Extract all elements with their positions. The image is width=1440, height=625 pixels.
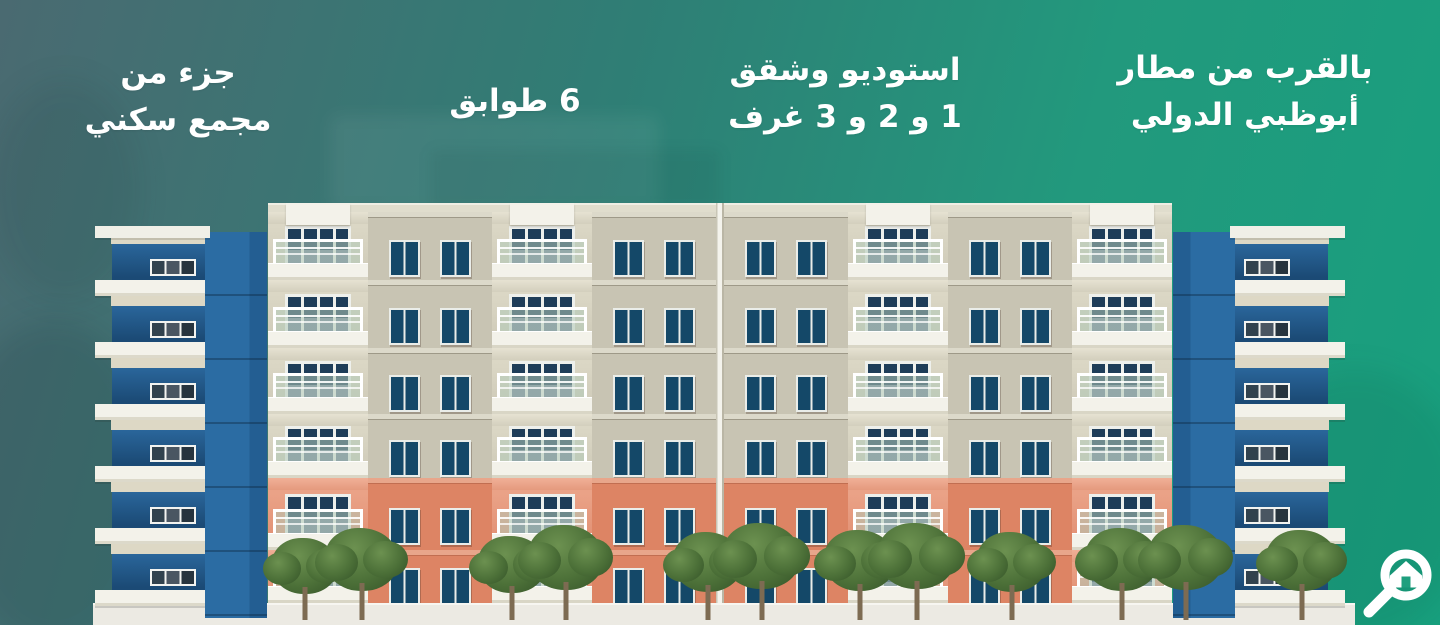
label-line: مجمع سكني <box>85 97 272 144</box>
balcony-slab <box>1072 332 1172 348</box>
balcony-slab <box>492 264 592 280</box>
balcony-railing <box>497 373 587 398</box>
wing-balcony <box>1230 358 1345 420</box>
balcony-railing <box>853 307 943 332</box>
tree <box>871 523 963 620</box>
apartment-window <box>1020 308 1051 345</box>
apartment-window <box>664 375 695 412</box>
wing-balcony-wall <box>112 554 210 591</box>
infographic-canvas: جزء من مجمع سكني 6 طوابق استوديو وشقق 1 … <box>0 0 1440 625</box>
wing-balcony-slab <box>95 466 210 482</box>
parapet-block <box>510 203 574 225</box>
apartment-window <box>1020 440 1051 477</box>
balcony-slab <box>1072 264 1172 280</box>
balcony-ceiling <box>268 280 368 292</box>
apartment-window <box>613 440 644 477</box>
wall-module <box>724 212 848 280</box>
wing-balcony <box>95 482 210 544</box>
apartment-window <box>796 240 827 277</box>
apartment-window <box>664 308 695 345</box>
wall-module <box>948 414 1072 478</box>
balcony-ceiling <box>1072 280 1172 292</box>
balcony-railing <box>273 239 363 264</box>
balcony-railing <box>853 437 943 462</box>
tree-trunk <box>1010 585 1015 620</box>
apartment-window <box>745 308 776 345</box>
wing-balcony <box>1230 234 1345 296</box>
wall-module <box>368 414 492 478</box>
tree-trunk <box>564 582 569 620</box>
balcony-ceiling <box>492 414 592 426</box>
balcony-slab <box>268 398 368 414</box>
wing-window <box>150 259 196 276</box>
label-line: جزء من <box>85 50 272 97</box>
apartment-window <box>796 308 827 345</box>
apartment-window <box>440 308 471 345</box>
wing-balcony-ceiling <box>1230 420 1329 430</box>
wing-balcony-slab <box>1230 466 1345 482</box>
wing-balcony-wall <box>112 306 210 343</box>
tree <box>318 528 406 620</box>
apartment-window <box>613 375 644 412</box>
wing-balcony-ceiling <box>1230 358 1329 368</box>
balcony-ceiling <box>492 478 592 490</box>
balcony-ceiling <box>492 348 592 360</box>
wing-window <box>1244 321 1290 338</box>
apartment-window <box>440 240 471 277</box>
balcony-slab <box>268 264 368 280</box>
parapet-block <box>286 203 350 225</box>
apartment-window <box>440 508 471 545</box>
wing-balcony-slab <box>1230 404 1345 420</box>
wall-module <box>724 414 848 478</box>
tree-canopy <box>723 523 800 589</box>
wall-module <box>368 348 492 414</box>
wing-balcony-ceiling <box>111 482 210 492</box>
wing-balcony-slab <box>1230 342 1345 358</box>
wing-balcony <box>1230 296 1345 358</box>
apartment-window <box>1020 240 1051 277</box>
wing-balcony <box>95 234 210 296</box>
wing-balcony <box>1230 420 1345 482</box>
balcony-module <box>848 348 948 414</box>
wing-balcony-wall <box>1230 368 1328 405</box>
balcony-ceiling <box>848 348 948 360</box>
apartment-window <box>389 440 420 477</box>
wall-module <box>724 348 848 414</box>
apartment-window <box>745 240 776 277</box>
balcony-railing <box>1077 307 1167 332</box>
magnifier-house-icon <box>1369 554 1427 612</box>
tree-canopy <box>1148 525 1224 590</box>
balcony-railing <box>853 239 943 264</box>
wall-module <box>724 280 848 348</box>
balcony-ceiling <box>268 478 368 490</box>
apartment-window <box>969 240 1000 277</box>
apartment-window <box>796 440 827 477</box>
apartment-window <box>664 240 695 277</box>
apartment-window <box>796 375 827 412</box>
apartment-window <box>440 375 471 412</box>
balcony-railing <box>497 307 587 332</box>
balcony-slab <box>1072 398 1172 414</box>
tree <box>716 523 808 620</box>
wing-balcony-slab <box>95 528 210 544</box>
balcony-slab <box>268 332 368 348</box>
tree-trunk <box>915 581 920 620</box>
label-unit-types: استوديو وشقق 1 و 2 و 3 غرف <box>728 47 962 140</box>
balcony-module <box>492 280 592 348</box>
wall-module <box>368 212 492 280</box>
balcony-railing <box>497 437 587 462</box>
wing-balcony-ceiling <box>1230 296 1329 306</box>
label-line: 1 و 2 و 3 غرف <box>728 94 962 141</box>
tree-trunk <box>360 583 365 620</box>
tree <box>1141 525 1231 620</box>
apartment-window <box>969 440 1000 477</box>
wing-balcony-wall <box>112 430 210 467</box>
wing-window <box>150 383 196 400</box>
tree-canopy <box>528 525 604 590</box>
tree-canopy <box>878 523 955 589</box>
wall-module <box>948 348 1072 414</box>
balcony-railing <box>1077 373 1167 398</box>
wing-balcony-ceiling <box>1230 482 1329 492</box>
balcony-slab <box>492 332 592 348</box>
wing-balcony-slab <box>95 342 210 358</box>
tree-canopy <box>1266 530 1338 591</box>
balcony-ceiling <box>268 348 368 360</box>
wing-balcony-wall <box>112 244 210 281</box>
label-airport-proximity: بالقرب من مطار أبوظبي الدولي <box>1117 45 1372 138</box>
wing-balcony <box>95 358 210 420</box>
wing-balcony-wall <box>112 368 210 405</box>
balcony-slab <box>1072 462 1172 478</box>
apartment-window <box>969 308 1000 345</box>
balcony-slab <box>268 462 368 478</box>
balcony-railing <box>273 437 363 462</box>
wing-balcony-ceiling <box>111 296 210 306</box>
wall-module <box>592 280 716 348</box>
tree-trunk <box>706 585 711 620</box>
balcony-module <box>268 280 368 348</box>
wing-window <box>1244 445 1290 462</box>
tree <box>521 525 611 620</box>
wing-balcony-slab <box>95 280 210 296</box>
wing-window <box>150 321 196 338</box>
bayut-logo <box>1358 548 1436 622</box>
apartment-window <box>389 308 420 345</box>
balcony-slab <box>848 264 948 280</box>
wall-module <box>592 348 716 414</box>
balcony-railing <box>497 239 587 264</box>
balcony-module <box>492 348 592 414</box>
apartment-window <box>969 375 1000 412</box>
faint-photo-shadow <box>430 150 720 210</box>
label-line: استوديو وشقق <box>728 47 962 94</box>
label-line: بالقرب من مطار <box>1117 45 1372 92</box>
wing-balcony <box>95 420 210 482</box>
wing-balcony-ceiling <box>111 544 210 554</box>
apartment-window <box>745 375 776 412</box>
apartment-window <box>745 440 776 477</box>
tree-trunk <box>510 586 515 620</box>
apartment-window <box>613 568 644 603</box>
balcony-railing <box>1077 239 1167 264</box>
wing-balcony-slab <box>95 590 210 606</box>
apartment-window <box>389 375 420 412</box>
balcony-railing <box>1077 437 1167 462</box>
balcony-slab <box>848 462 948 478</box>
balcony-module <box>848 414 948 478</box>
wall-module <box>592 212 716 280</box>
balcony-module <box>848 280 948 348</box>
balcony-railing <box>853 373 943 398</box>
parapet-block <box>1090 203 1154 225</box>
label-residential-complex: جزء من مجمع سكني <box>85 50 272 143</box>
balcony-ceiling <box>492 280 592 292</box>
balcony-ceiling <box>1072 348 1172 360</box>
wing-window <box>1244 259 1290 276</box>
balcony-module <box>492 414 592 478</box>
balcony-ceiling <box>1072 478 1172 490</box>
wing-balcony-wall <box>112 492 210 529</box>
wing-balcony-wall <box>1230 492 1328 529</box>
balcony-railing <box>273 373 363 398</box>
balcony-slab <box>492 462 592 478</box>
balcony-ceiling <box>848 414 948 426</box>
wall-module <box>948 280 1072 348</box>
wing-balcony-ceiling <box>111 420 210 430</box>
tree <box>1259 530 1345 620</box>
balcony-module <box>1072 348 1172 414</box>
balcony-slab <box>848 398 948 414</box>
apartment-window <box>1020 375 1051 412</box>
balcony-slab <box>848 332 948 348</box>
wing-window <box>1244 507 1290 524</box>
wall-module <box>592 414 716 478</box>
wing-balcony-wall <box>1230 306 1328 343</box>
wing-balcony <box>95 296 210 358</box>
tree-trunk <box>858 584 863 620</box>
wing-balcony <box>95 544 210 606</box>
tree-trunk <box>1184 582 1189 620</box>
balcony-module <box>1072 414 1172 478</box>
wing-balcony-ceiling <box>111 358 210 368</box>
wing-balcony-wall <box>1230 244 1328 281</box>
tree-trunk <box>760 581 765 620</box>
label-line: أبوظبي الدولي <box>1117 92 1372 139</box>
apartment-window <box>613 308 644 345</box>
apartment-window <box>613 508 644 545</box>
tower-column <box>205 232 267 618</box>
label-line: 6 طوابق <box>449 78 580 125</box>
wing-balcony-slab <box>1230 280 1345 296</box>
apartment-window <box>440 440 471 477</box>
wing-window <box>150 507 196 524</box>
parapet-block <box>866 203 930 225</box>
balcony-ceiling <box>848 280 948 292</box>
balcony-ceiling <box>848 478 948 490</box>
balcony-module <box>1072 280 1172 348</box>
balcony-module <box>268 414 368 478</box>
tree-trunk <box>1300 584 1305 620</box>
balcony-module <box>268 348 368 414</box>
apartment-window <box>613 240 644 277</box>
wing-balcony-slab <box>95 404 210 420</box>
tree <box>970 532 1054 620</box>
wall-module <box>948 212 1072 280</box>
apartment-window <box>440 568 471 603</box>
balcony-slab <box>492 398 592 414</box>
wing-balcony-wall <box>1230 430 1328 467</box>
wing-window <box>150 445 196 462</box>
apartment-window <box>389 240 420 277</box>
faint-photo-highlight <box>330 115 660 210</box>
tree-trunk <box>303 587 308 620</box>
wing-roof-cap <box>95 226 210 238</box>
wing-window <box>150 569 196 586</box>
wing-window <box>1244 383 1290 400</box>
balcony-ceiling <box>1072 414 1172 426</box>
balcony-railing <box>273 307 363 332</box>
tree-canopy <box>977 532 1048 592</box>
wall-module <box>368 280 492 348</box>
tree-trunk <box>1120 583 1125 620</box>
tree-canopy <box>325 528 399 591</box>
balcony-ceiling <box>268 414 368 426</box>
left-wing <box>95 226 267 625</box>
wing-roof-cap <box>1230 226 1345 238</box>
label-floors-count: 6 طوابق <box>449 78 580 125</box>
apartment-window <box>664 440 695 477</box>
